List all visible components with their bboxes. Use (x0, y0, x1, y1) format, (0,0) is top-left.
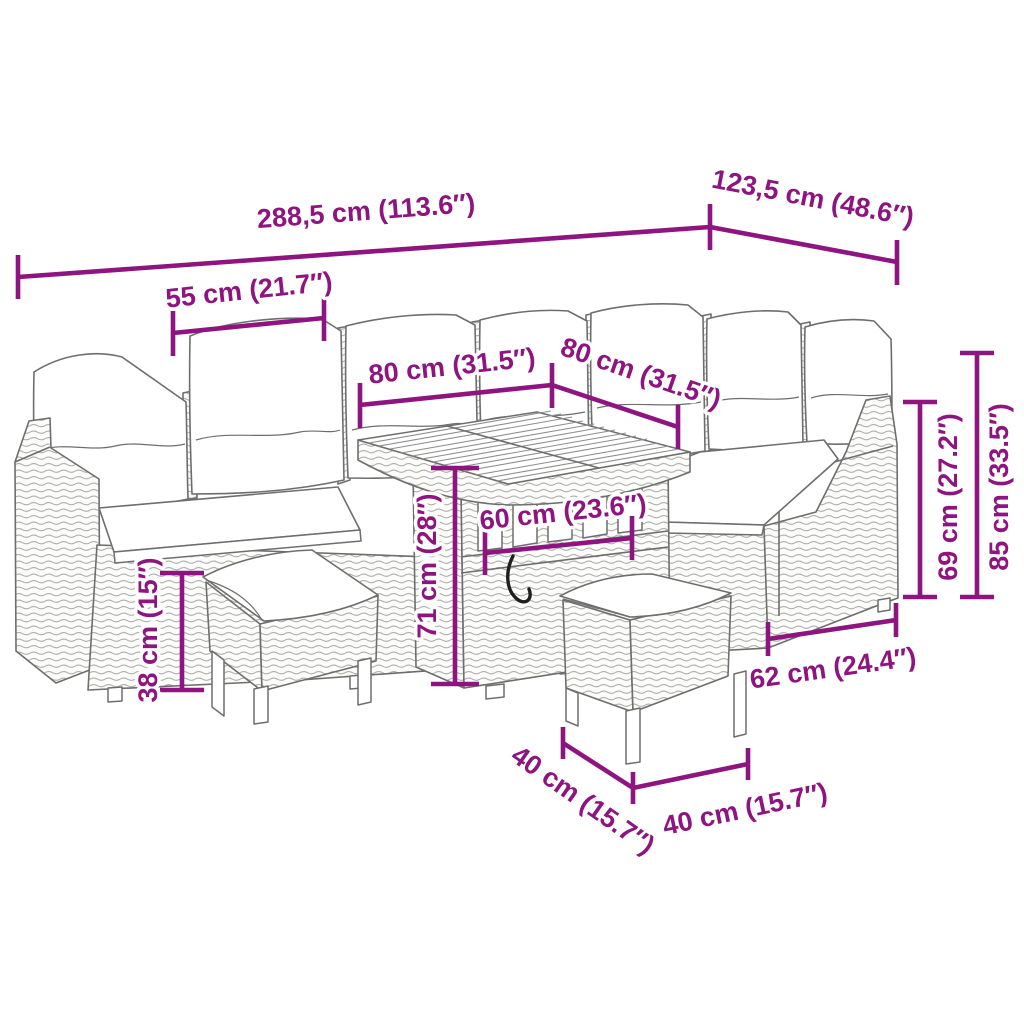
dim-backrest-height: 69 cm (27.2″) (903, 402, 963, 597)
dim-total-width-label: 288,5 cm (113.6″) (256, 188, 476, 234)
dim-total-depth-label: 123,5 cm (48.6″) (709, 164, 916, 233)
dim-stool-depth-label: 40 cm (15.7″) (660, 777, 830, 841)
dim-stool-height-label: 38 cm (15″) (133, 557, 163, 702)
dim-stool-depth-line (633, 748, 748, 788)
dim-table-height-label: 71 cm (28″) (412, 493, 442, 638)
dim-overall-height: 85 cm (33.5″) (960, 353, 1014, 597)
seat-cushion-corner-edge (664, 522, 764, 535)
dim-stool-depth: 40 cm (15.7″) (633, 748, 830, 841)
back-cushion-6 (707, 311, 803, 450)
dim-cushion-width-label: 55 cm (21.7″) (164, 266, 334, 313)
dim-overall-height-label: 85 cm (33.5″) (984, 403, 1014, 571)
dim-total-depth: 123,5 cm (48.6″) (709, 164, 916, 285)
dim-backrest-height-line (903, 402, 937, 597)
dim-total-depth-line (710, 227, 897, 285)
dim-seat-depth-label: 62 cm (24.4″) (748, 641, 918, 694)
stool-right (560, 574, 746, 764)
dim-total-width: 288,5 cm (113.6″) (18, 188, 710, 299)
diagram-canvas: 288,5 cm (113.6″) 123,5 cm (48.6″) 55 cm… (0, 0, 1024, 1024)
dim-backrest-height-label: 69 cm (27.2″) (933, 413, 963, 581)
back-cushion-2 (190, 318, 344, 494)
dimension-diagram: 288,5 cm (113.6″) 123,5 cm (48.6″) 55 cm… (0, 0, 1024, 1024)
